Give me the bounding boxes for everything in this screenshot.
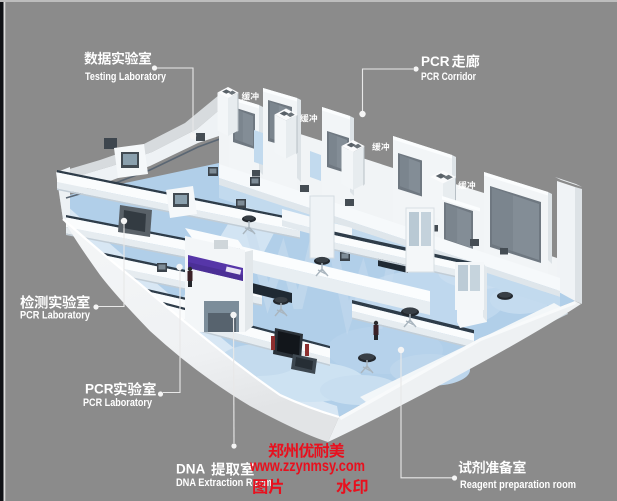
svg-text:PCR Laboratory: PCR Laboratory (83, 397, 153, 409)
svg-text:Reagent preparation room: Reagent preparation room (460, 479, 576, 491)
svg-text:PCR: PCR (421, 54, 450, 69)
svg-text:PCR Corridor: PCR Corridor (421, 71, 477, 83)
svg-text:DNA: DNA (176, 462, 205, 477)
svg-text:PCR: PCR (85, 382, 114, 397)
svg-text:Testing Laboratory: Testing Laboratory (85, 71, 167, 83)
svg-text:PCR Laboratory: PCR Laboratory (20, 310, 91, 322)
svg-text:www.zzynmsy.com: www.zzynmsy.com (249, 458, 365, 475)
